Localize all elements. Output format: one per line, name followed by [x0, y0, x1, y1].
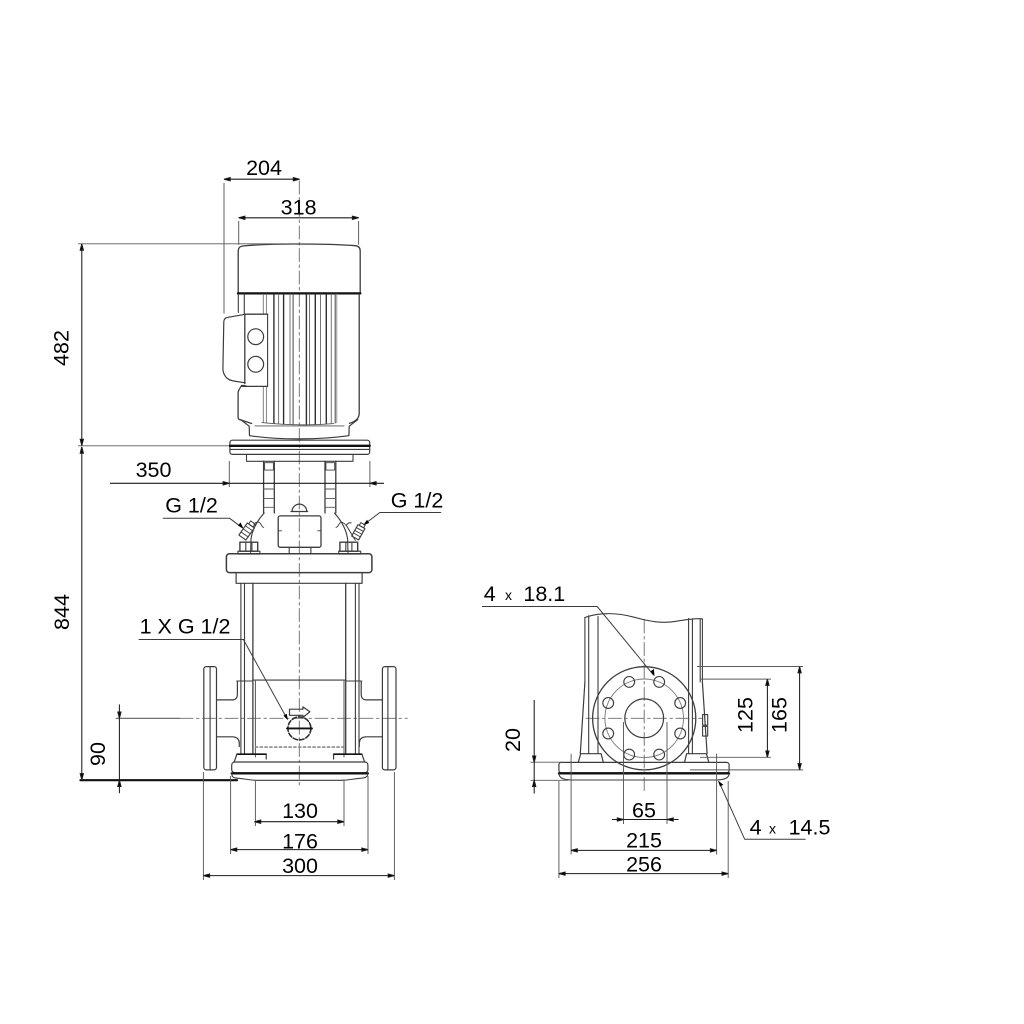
- svg-text:x: x: [505, 587, 512, 603]
- svg-text:318: 318: [281, 196, 317, 220]
- svg-text:x: x: [769, 820, 776, 836]
- svg-text:482: 482: [50, 330, 74, 366]
- svg-text:65: 65: [632, 799, 656, 823]
- svg-text:176: 176: [282, 829, 318, 853]
- svg-text:20: 20: [501, 728, 525, 752]
- svg-text:1 X G 1/2: 1 X G 1/2: [140, 615, 231, 639]
- svg-text:90: 90: [86, 742, 110, 766]
- svg-text:G 1/2: G 1/2: [391, 489, 444, 513]
- svg-text:130: 130: [282, 799, 318, 823]
- svg-text:14.5: 14.5: [789, 815, 831, 839]
- svg-text:4: 4: [484, 582, 496, 606]
- svg-text:844: 844: [50, 594, 74, 630]
- svg-text:18.1: 18.1: [523, 582, 565, 606]
- svg-text:256: 256: [626, 853, 662, 877]
- svg-text:350: 350: [136, 458, 172, 482]
- svg-text:G 1/2: G 1/2: [165, 494, 218, 518]
- svg-text:125: 125: [734, 697, 758, 733]
- svg-text:165: 165: [768, 697, 792, 733]
- svg-text:300: 300: [282, 854, 318, 878]
- svg-text:204: 204: [246, 156, 282, 180]
- svg-text:215: 215: [626, 829, 662, 853]
- svg-text:4: 4: [750, 815, 762, 839]
